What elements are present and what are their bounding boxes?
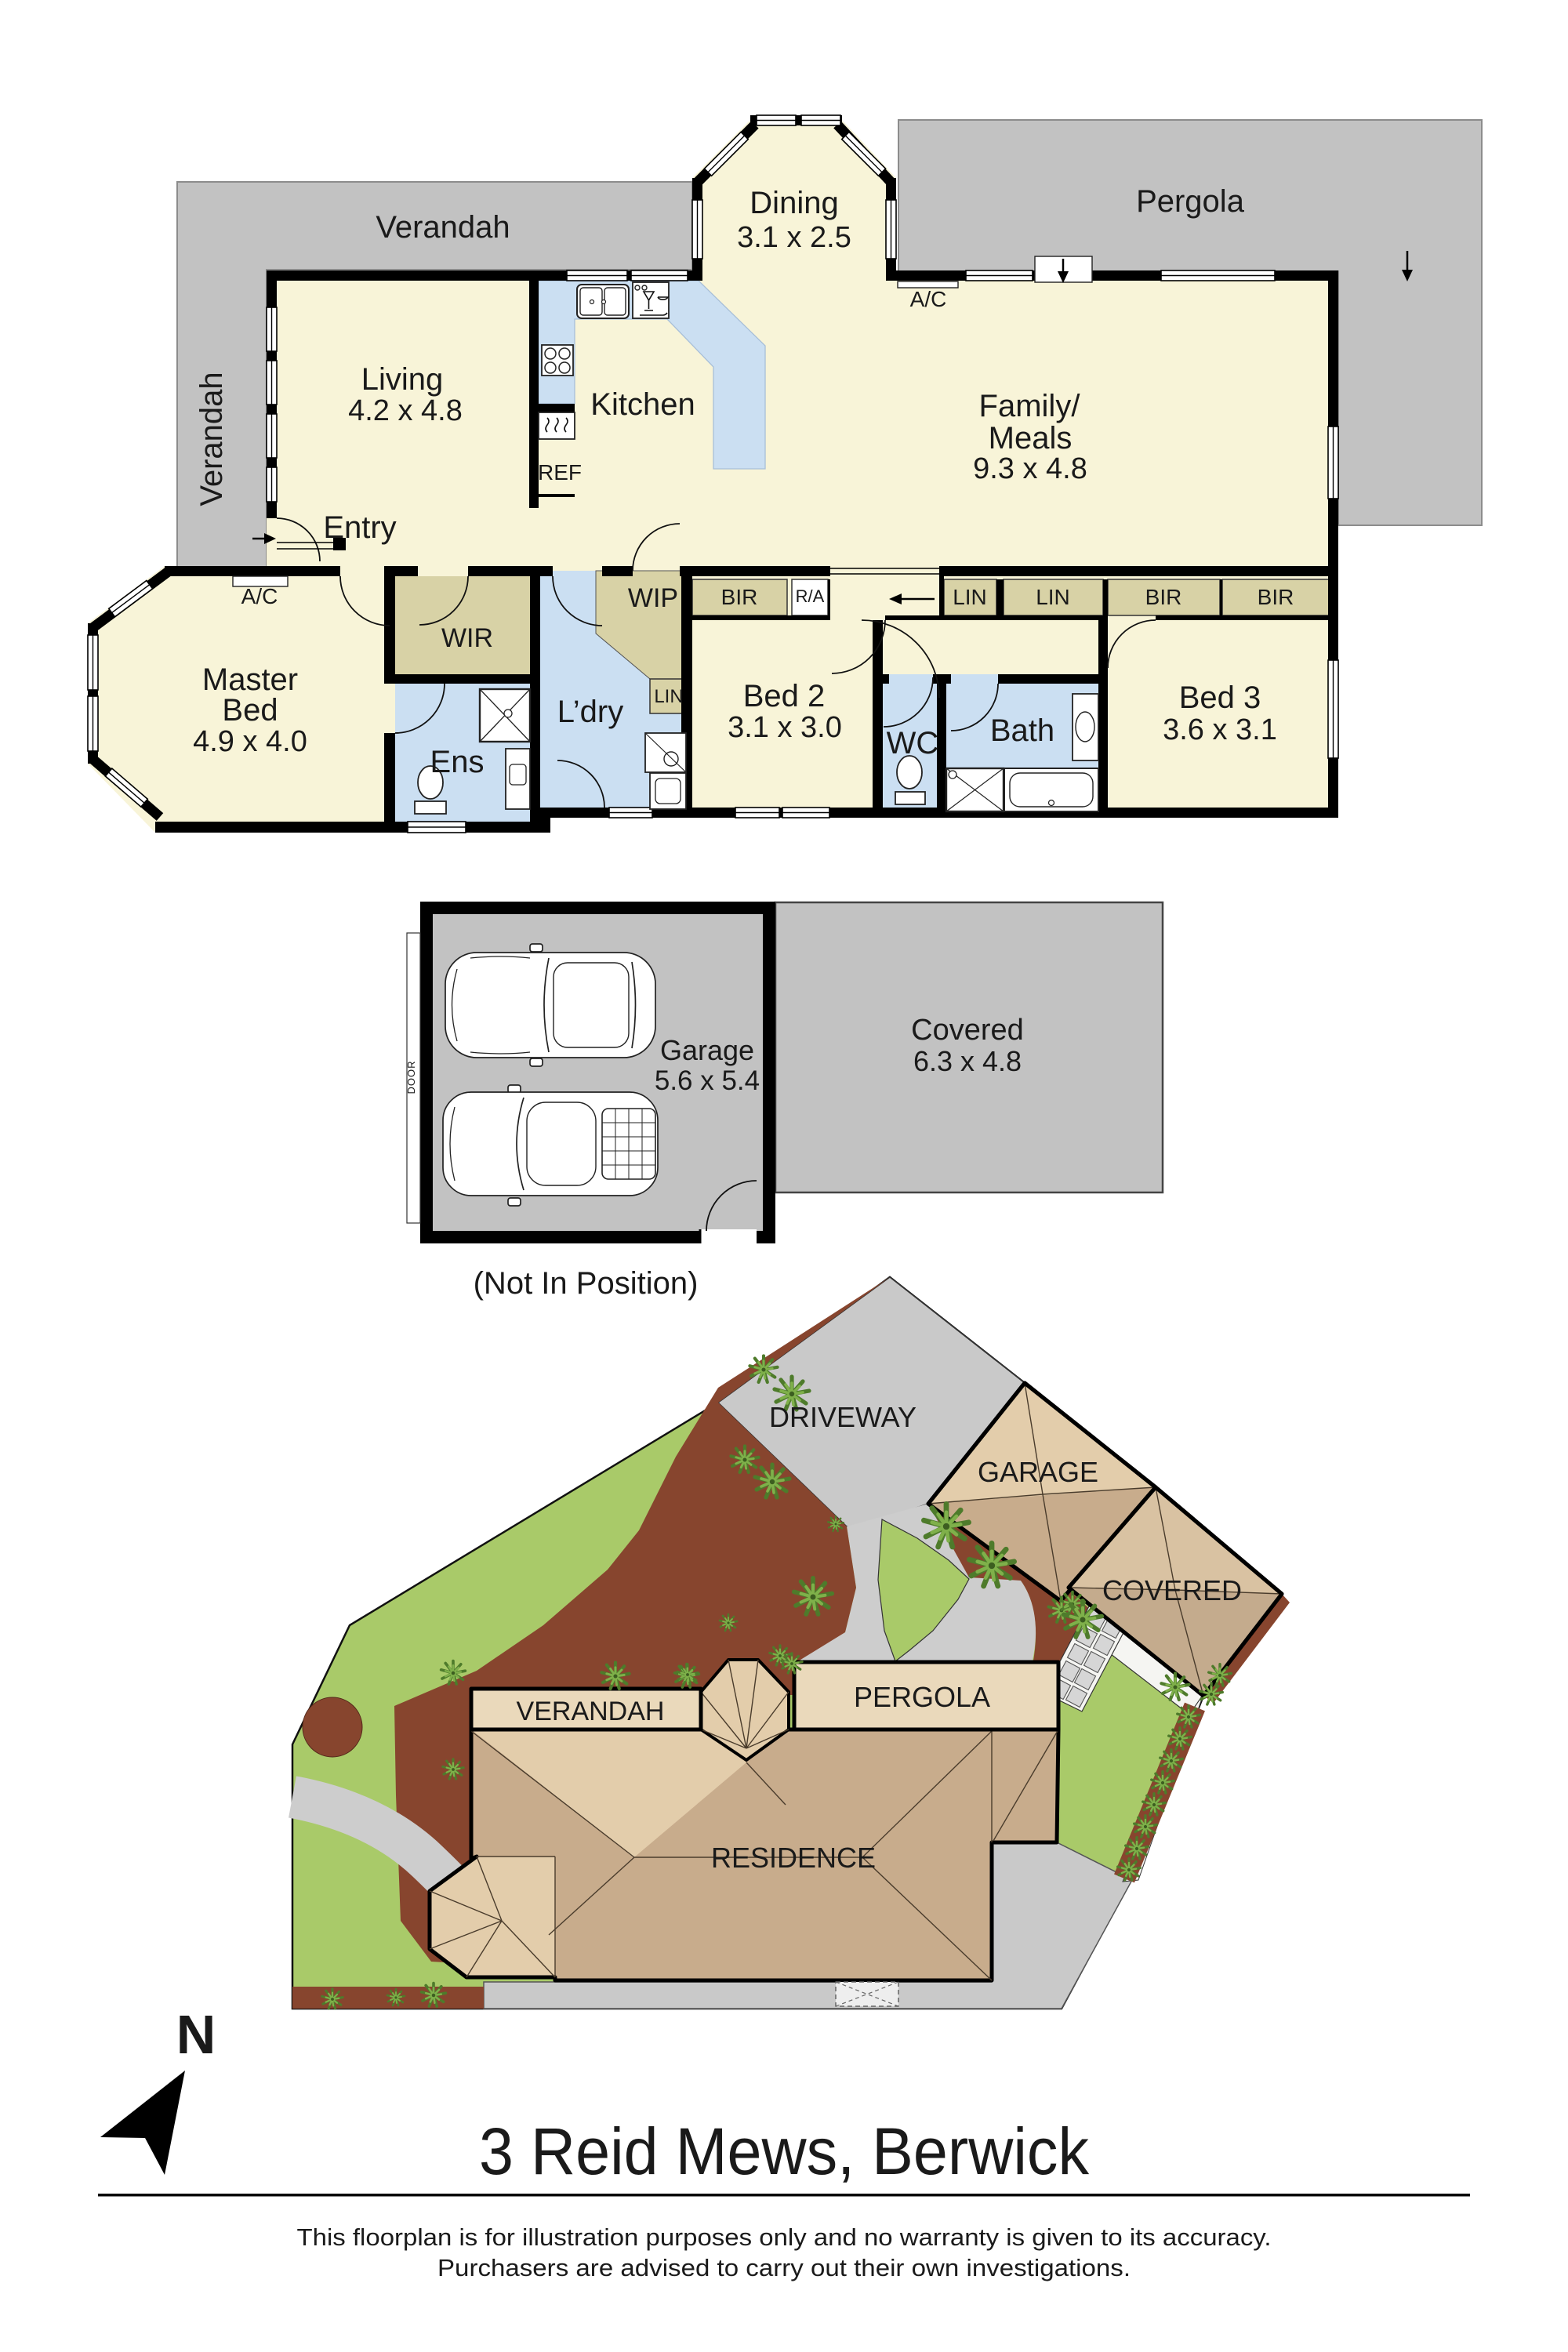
svg-text:Verandah: Verandah	[376, 210, 510, 245]
svg-text:BIR: BIR	[721, 585, 758, 609]
svg-text:Bed 3: Bed 3	[1179, 681, 1261, 715]
svg-text:Kitchen: Kitchen	[590, 387, 695, 422]
svg-text:Dining: Dining	[750, 186, 838, 220]
svg-text:Garage: Garage	[660, 1034, 754, 1066]
svg-text:RESIDENCE: RESIDENCE	[711, 1842, 876, 1874]
svg-text:LIN: LIN	[654, 686, 683, 707]
svg-text:3 Reid Mews, Berwick: 3 Reid Mews, Berwick	[479, 2114, 1090, 2188]
svg-text:WIR: WIR	[441, 623, 493, 653]
svg-text:3.1 x 2.5: 3.1 x 2.5	[737, 221, 851, 254]
svg-text:Pergola: Pergola	[1136, 184, 1245, 219]
svg-text:This floorplan is for illustra: This floorplan is for illustration purpo…	[297, 2223, 1272, 2251]
svg-text:REF: REF	[538, 460, 582, 485]
svg-text:Bed: Bed	[222, 693, 278, 728]
svg-text:BIR: BIR	[1145, 585, 1182, 609]
svg-text:PERGOLA: PERGOLA	[854, 1681, 990, 1713]
svg-text:Living: Living	[361, 362, 444, 397]
svg-text:DRIVEWAY: DRIVEWAY	[769, 1401, 916, 1433]
svg-text:LIN: LIN	[953, 585, 987, 609]
svg-text:BIR: BIR	[1258, 585, 1294, 609]
svg-text:A/C: A/C	[910, 287, 947, 311]
svg-text:R/A: R/A	[796, 586, 825, 606]
svg-text:9.3 x 4.8: 9.3 x 4.8	[973, 452, 1087, 485]
svg-text:Purchasers are advised to carr: Purchasers are advised to carry out thei…	[437, 2254, 1131, 2281]
svg-text:VERANDAH: VERANDAH	[517, 1697, 665, 1726]
svg-text:DOOR: DOOR	[405, 1061, 417, 1094]
svg-text:Entry: Entry	[323, 510, 396, 545]
svg-text:4.9 x 4.0: 4.9 x 4.0	[193, 725, 307, 758]
svg-text:3.6 x 3.1: 3.6 x 3.1	[1163, 713, 1277, 746]
svg-text:GARAGE: GARAGE	[978, 1456, 1098, 1488]
svg-text:WIP: WIP	[628, 583, 678, 613]
svg-text:A/C: A/C	[241, 584, 278, 608]
svg-text:COVERED: COVERED	[1102, 1574, 1242, 1606]
svg-text:3.1 x 3.0: 3.1 x 3.0	[728, 711, 842, 744]
svg-text:N: N	[176, 2004, 216, 2065]
svg-text:(Not In Position): (Not In Position)	[474, 1266, 699, 1301]
svg-text:Verandah: Verandah	[194, 372, 229, 506]
svg-text:Family/: Family/	[979, 389, 1081, 423]
svg-text:Master: Master	[202, 662, 298, 697]
svg-text:Bed 2: Bed 2	[743, 679, 826, 713]
svg-text:4.2 x 4.8: 4.2 x 4.8	[348, 394, 463, 427]
svg-text:Meals: Meals	[989, 421, 1073, 456]
svg-text:WC: WC	[887, 726, 939, 760]
svg-text:L’dry: L’dry	[557, 695, 624, 729]
svg-text:LIN: LIN	[1036, 585, 1070, 609]
svg-text:Covered: Covered	[911, 1014, 1024, 1047]
svg-text:Bath: Bath	[990, 713, 1054, 748]
svg-text:Ens: Ens	[430, 745, 485, 779]
svg-text:5.6 x 5.4: 5.6 x 5.4	[655, 1065, 760, 1096]
svg-text:6.3 x 4.8: 6.3 x 4.8	[913, 1045, 1022, 1077]
